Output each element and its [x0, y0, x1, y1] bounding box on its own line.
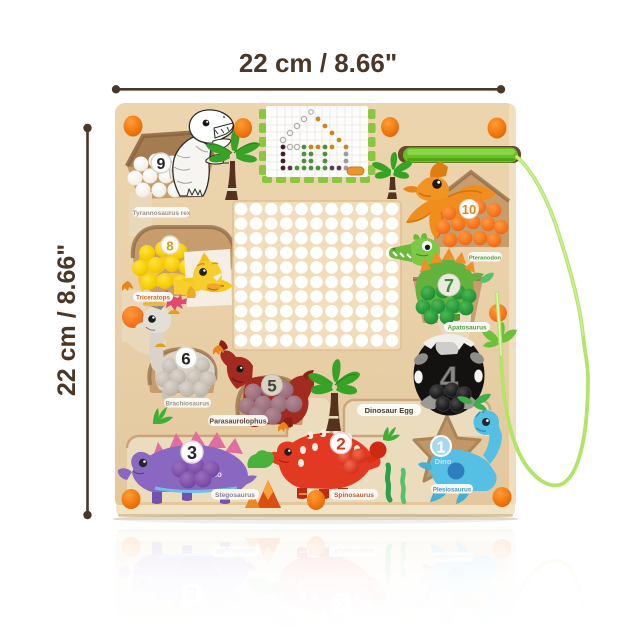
svg-text:7: 7	[444, 276, 454, 296]
svg-text:Spinosaurus: Spinosaurus	[334, 492, 374, 499]
svg-text:3: 3	[187, 443, 197, 463]
svg-text:Triceratops: Triceratops	[136, 294, 170, 301]
svg-text:Apatosaurus: Apatosaurus	[447, 325, 487, 332]
svg-text:9: 9	[157, 156, 166, 173]
svg-text:22 cm / 8.66": 22 cm / 8.66"	[239, 48, 397, 78]
svg-text:10: 10	[462, 202, 476, 217]
svg-text:Dinosaur Egg: Dinosaur Egg	[365, 406, 414, 415]
svg-text:1: 1	[437, 440, 446, 457]
svg-text:2: 2	[336, 435, 345, 454]
svg-text:Parasaurolophus: Parasaurolophus	[209, 418, 266, 425]
svg-text:5: 5	[267, 377, 276, 396]
svg-text:Pteranodon: Pteranodon	[469, 255, 502, 261]
svg-text:6: 6	[181, 350, 190, 369]
svg-text:Tyrannosaurus rex: Tyrannosaurus rex	[132, 210, 190, 217]
svg-text:Dino: Dino	[435, 457, 452, 466]
svg-text:Brachiosaurus: Brachiosaurus	[165, 400, 210, 407]
svg-text:Stegosaurus: Stegosaurus	[215, 492, 255, 499]
svg-text:Plesiosaurus: Plesiosaurus	[433, 486, 472, 493]
svg-text:22 cm / 8.66": 22 cm / 8.66"	[53, 244, 81, 396]
svg-text:8: 8	[166, 239, 173, 254]
